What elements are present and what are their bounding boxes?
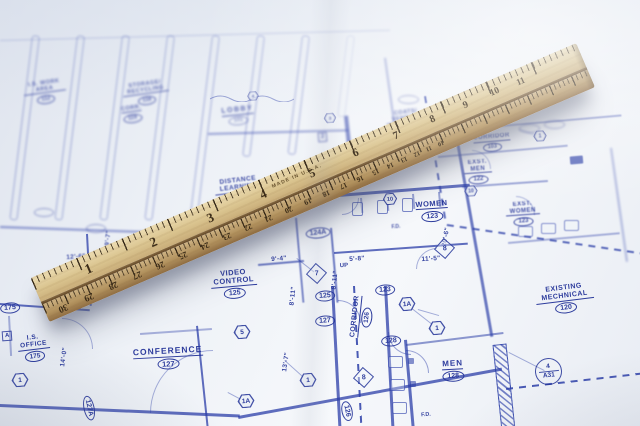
ruler-cm-number: 16 bbox=[355, 173, 365, 183]
room-label-exstwomen: EXST. WOMEN 123 bbox=[505, 200, 541, 228]
blueprint-photo: I.S. WORK AREA 112 STORAGE/ RECYCLING 11… bbox=[0, 0, 640, 426]
dimension-text: 8'-11" bbox=[331, 270, 340, 290]
room-name: LOBBY bbox=[221, 105, 254, 117]
room-number-tag: 123 bbox=[421, 210, 443, 222]
ruler-inch-number: 7 bbox=[391, 129, 401, 142]
room-name: EXST. WOMEN bbox=[505, 200, 540, 217]
keynote-diamond: 7 bbox=[306, 263, 327, 284]
match-line-dashed bbox=[506, 373, 640, 390]
room-name: VIDEO CONTROL bbox=[210, 267, 257, 289]
ruler-cm-number: 24 bbox=[199, 240, 211, 253]
ruler-inch-number: 11 bbox=[515, 75, 527, 88]
ruler-cm-number: 26 bbox=[154, 259, 166, 272]
toilet-fixture bbox=[390, 379, 405, 391]
door-arc bbox=[62, 318, 93, 349]
ruler-cm-number: 27 bbox=[131, 269, 143, 282]
room-name: CONFERENCE bbox=[133, 345, 203, 359]
toilet-fixture bbox=[392, 402, 407, 414]
room-number-tag: 122 bbox=[468, 175, 489, 186]
room-name: MEN bbox=[442, 359, 463, 370]
room-name: STORAGE/ RECYCLING bbox=[122, 78, 169, 98]
room-label-men: MEN 128 bbox=[442, 359, 465, 383]
room-tag-faint bbox=[86, 224, 106, 233]
room-tag-175: 175 bbox=[0, 302, 20, 315]
ruler-inch-number: 4 bbox=[258, 186, 270, 202]
plan-strip bbox=[144, 35, 175, 221]
existing-wall-hatched bbox=[492, 344, 515, 426]
room-tag-faint bbox=[398, 95, 419, 104]
ruler-cm-number: 18 bbox=[321, 188, 331, 199]
room-label-corridor126: CORRIDOR 126 bbox=[349, 295, 375, 339]
room-number-tag: 123 bbox=[513, 217, 534, 228]
ruler-inch-number: 8 bbox=[428, 113, 437, 125]
ruler-cm-number: 30 bbox=[57, 301, 70, 314]
room-name: CORRIDOR bbox=[349, 295, 362, 338]
room-label-women: WOMEN 123 bbox=[415, 199, 449, 223]
room-name: EXISTING MECHNICAL bbox=[534, 281, 594, 305]
plan-strip bbox=[99, 35, 130, 221]
keynote-hex: 5 bbox=[233, 324, 251, 339]
ruler-cm-number: 21 bbox=[263, 213, 274, 224]
wall-line bbox=[140, 328, 212, 335]
floor-drain bbox=[410, 381, 416, 387]
ruler-cm-number: 12 bbox=[412, 149, 421, 158]
toilet-fixture bbox=[402, 198, 413, 212]
room-number-tag: 127 bbox=[157, 358, 180, 370]
room-label-iswork: I.S. WORK AREA 112 bbox=[23, 77, 68, 106]
detail-number: 4 bbox=[546, 363, 550, 370]
sink-fixture bbox=[518, 226, 533, 237]
room-name: CORR. bbox=[121, 104, 142, 114]
room-name: I.S. OFFICE bbox=[16, 332, 50, 351]
door-tag-123: 123 bbox=[375, 284, 395, 296]
room-number-tag: 126 bbox=[361, 307, 374, 329]
ruler-cm-number: 19 bbox=[303, 196, 314, 207]
ruler-cm-number: 17 bbox=[339, 181, 349, 192]
room-number-tag: 175 bbox=[24, 350, 46, 363]
up-text: UP bbox=[340, 263, 349, 270]
ruler-inch-number: 3 bbox=[204, 209, 216, 226]
plan-strip bbox=[54, 35, 85, 221]
door-tag-126: 126 bbox=[340, 400, 355, 422]
ruler-cm-number: 14 bbox=[386, 160, 395, 169]
dimension-text: 14'-0" bbox=[59, 347, 69, 367]
room-label-video: VIDEO CONTROL 125 bbox=[210, 267, 258, 301]
ruler-cm-number: 23 bbox=[221, 231, 232, 243]
room-label-exstmen: EXST. MEN 122 bbox=[463, 158, 493, 185]
room-name: EXST. MEN bbox=[463, 158, 492, 174]
ruler-cm-number: 28 bbox=[107, 279, 119, 292]
door-arc bbox=[406, 350, 429, 373]
room-number-tag: 103 bbox=[482, 142, 502, 153]
room-name: WOMEN bbox=[415, 199, 448, 211]
ruler-cm-number: 22 bbox=[243, 221, 254, 232]
keynote-square: 2 bbox=[318, 132, 328, 143]
floor-drain-text: F.D. bbox=[391, 224, 400, 231]
plan-strip bbox=[337, 35, 355, 117]
ruler-inch-number: 1 bbox=[83, 261, 96, 278]
floor-drain-text: F.D. bbox=[421, 412, 431, 419]
keynote-hex: 3 bbox=[323, 112, 336, 123]
room-label-isoffice: I.S. OFFICE 175 bbox=[16, 332, 51, 364]
room-number-tag: 112 bbox=[36, 94, 56, 106]
ruler-inch-number: 9 bbox=[461, 99, 470, 111]
keynote-hex: 1A bbox=[237, 393, 255, 408]
ruler-inch-number: 10 bbox=[489, 86, 502, 99]
ruler-cm-number: 11 bbox=[425, 144, 433, 153]
room-number-tag: 128 bbox=[442, 371, 464, 383]
room-tag-faint bbox=[544, 120, 565, 129]
door-tag-124A: 124A bbox=[305, 226, 331, 240]
dimension-text: 8'-11" bbox=[289, 286, 298, 306]
ruler-cm-number: 10 bbox=[436, 139, 444, 148]
wall-line bbox=[0, 30, 390, 41]
sink-fixture bbox=[564, 220, 579, 231]
dimension-text: 13'-7" bbox=[281, 352, 291, 372]
ruler-cm-number: 20 bbox=[283, 204, 294, 215]
door-tag-127A: 127A bbox=[81, 395, 97, 421]
dimension-text: 9'-4" bbox=[271, 255, 287, 263]
ruler-cm-number: 13 bbox=[399, 155, 408, 164]
ruler-cm-number: 15 bbox=[371, 167, 381, 177]
ruler-cm-number: 29 bbox=[82, 290, 95, 303]
wall-line bbox=[610, 148, 628, 262]
room-label-corr: CORR. 119 bbox=[121, 104, 143, 124]
room-number-tag: 120 bbox=[555, 301, 578, 315]
detail-sheet: A31 bbox=[543, 372, 556, 380]
dimension-text: 5'-8" bbox=[349, 255, 365, 263]
ruler-inch-number: 6 bbox=[351, 147, 361, 160]
room-label-conference: CONFERENCE 127 bbox=[133, 345, 204, 372]
wall-line bbox=[406, 332, 504, 346]
ruler-inch-number: 2 bbox=[147, 234, 160, 251]
room-tag-faint bbox=[34, 208, 54, 217]
room-number-tag: 125 bbox=[224, 287, 247, 300]
keynote-square: A bbox=[2, 331, 13, 342]
room-label-existmech: EXISTING MECHNICAL 120 bbox=[534, 281, 595, 317]
keynote-hex: 1 bbox=[11, 372, 29, 387]
room-number-tag: 119 bbox=[123, 113, 143, 125]
sink-fixture bbox=[541, 223, 556, 234]
equipment-fixture bbox=[570, 155, 584, 164]
toilet-fixture bbox=[388, 356, 403, 368]
plan-strip bbox=[9, 35, 40, 221]
keynote-diamond: 8 bbox=[353, 367, 374, 388]
dimension-text: 11'-5" bbox=[421, 255, 441, 263]
ruler-cm-number: 25 bbox=[177, 249, 189, 262]
room-label-lobby: LOBBY 101 bbox=[221, 105, 255, 128]
